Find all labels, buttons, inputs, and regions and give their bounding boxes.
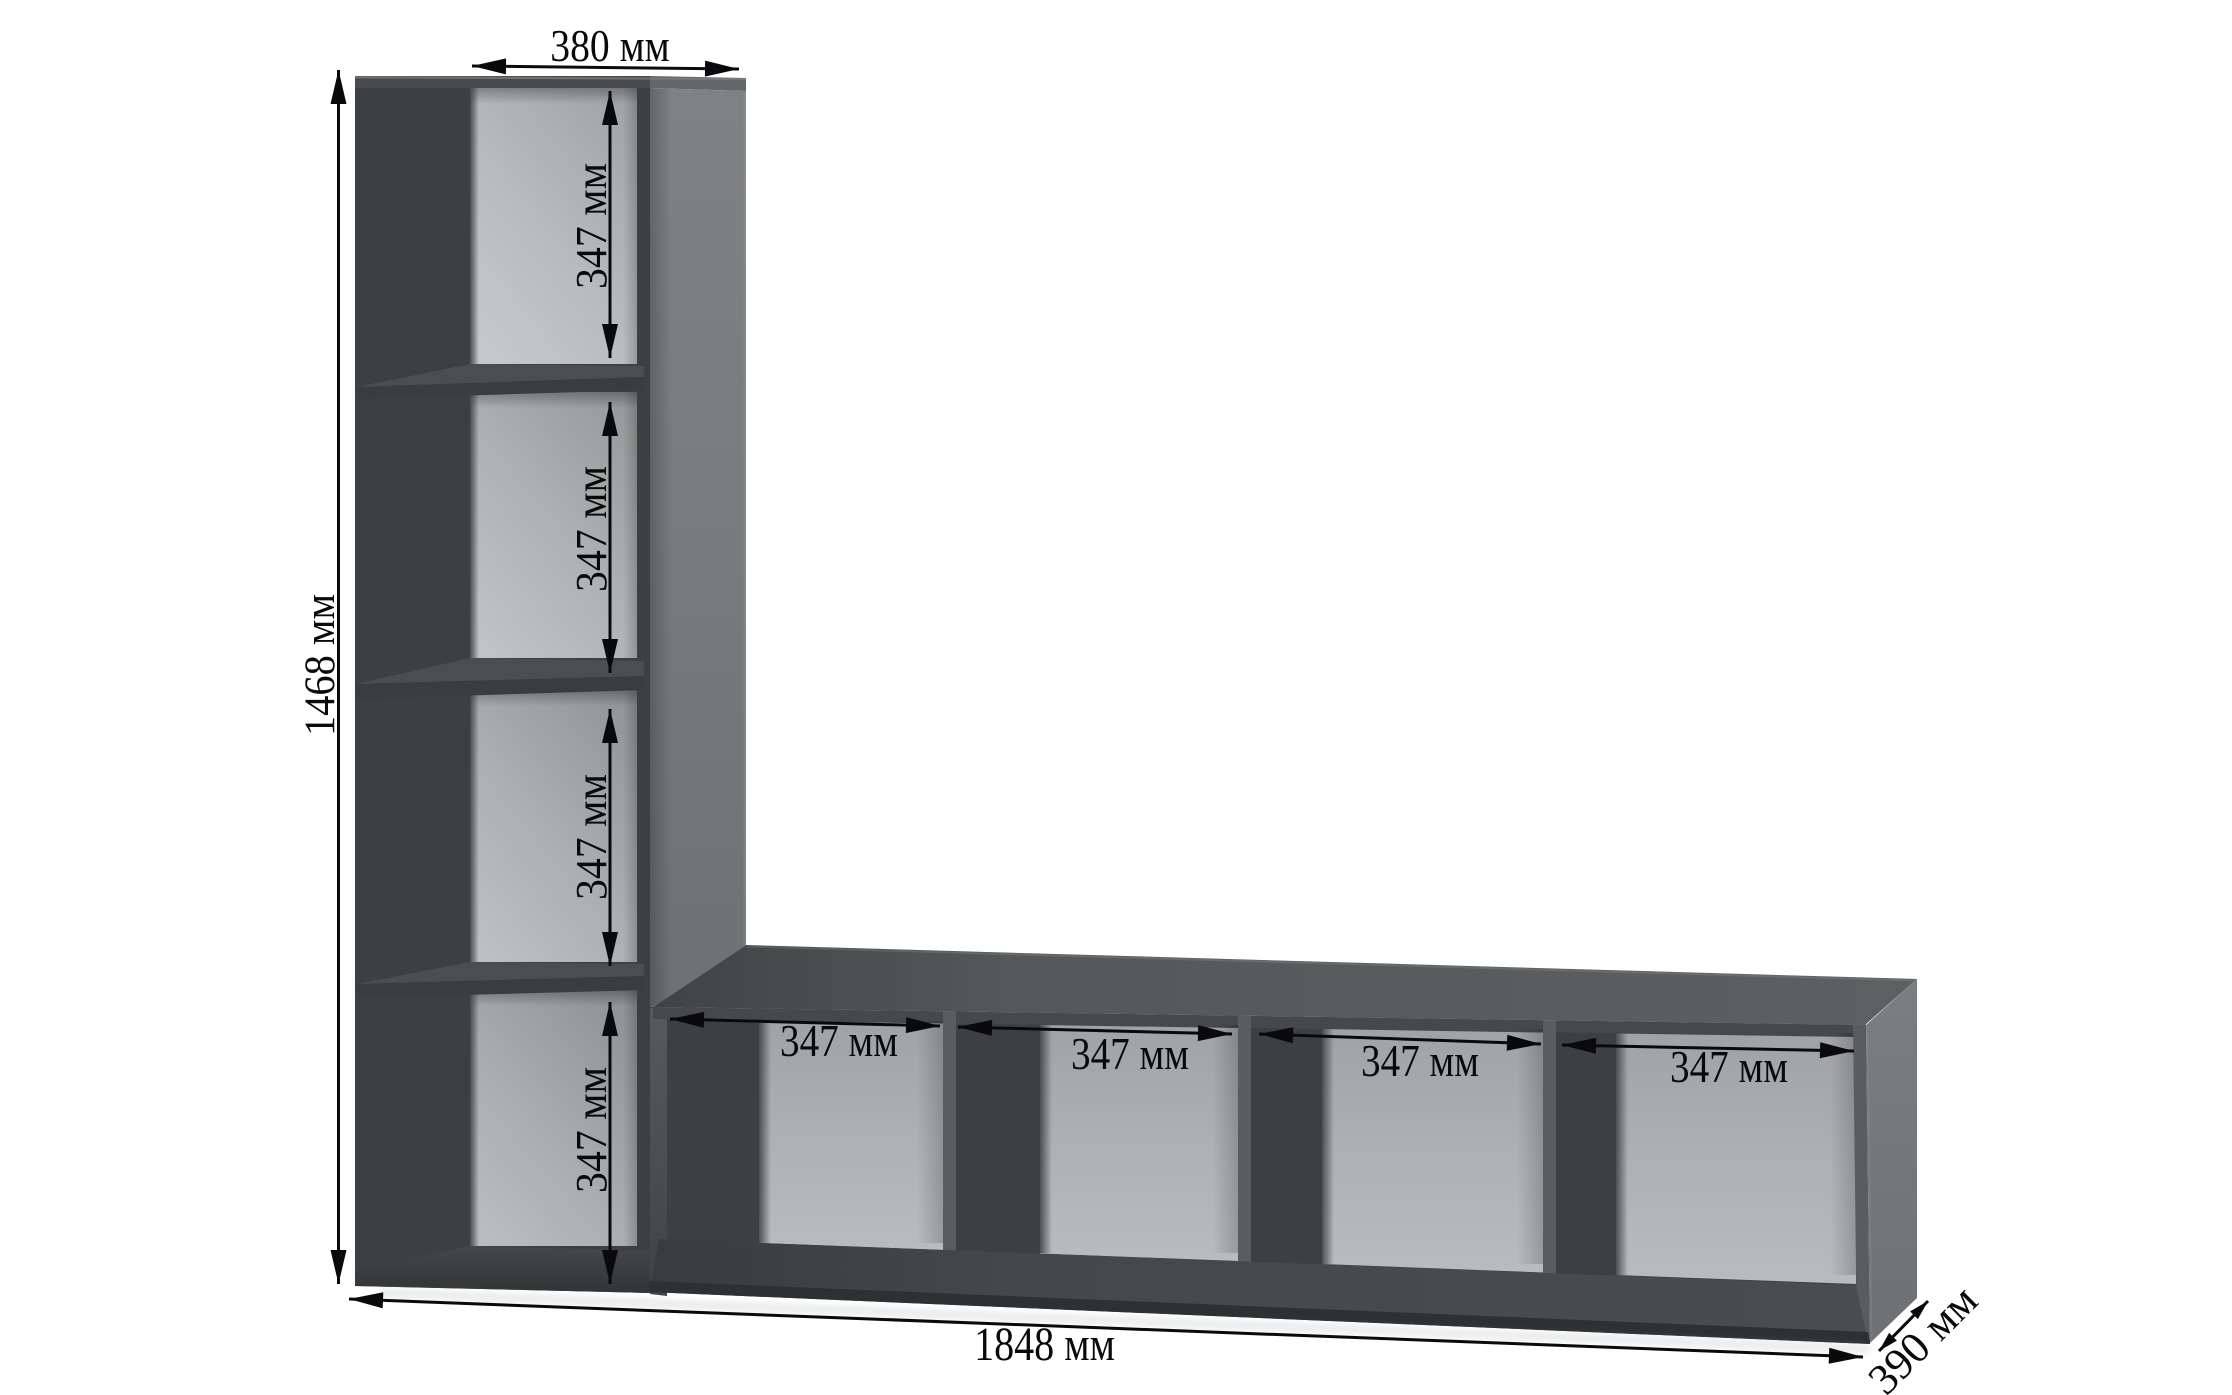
svg-text:347 мм: 347 мм [1670, 1043, 1788, 1093]
svg-text:347 мм: 347 мм [1361, 1037, 1479, 1087]
svg-text:347 мм: 347 мм [568, 163, 616, 289]
svg-text:347 мм: 347 мм [568, 774, 616, 900]
svg-text:1848 мм: 1848 мм [974, 1318, 1115, 1371]
svg-text:380 мм: 380 мм [550, 22, 669, 72]
svg-text:1468 мм: 1468 мм [297, 594, 344, 736]
svg-text:347 мм: 347 мм [568, 466, 616, 592]
svg-text:347 мм: 347 мм [780, 1017, 898, 1067]
svg-text:347 мм: 347 мм [568, 1067, 616, 1193]
svg-text:347 мм: 347 мм [1071, 1030, 1189, 1080]
